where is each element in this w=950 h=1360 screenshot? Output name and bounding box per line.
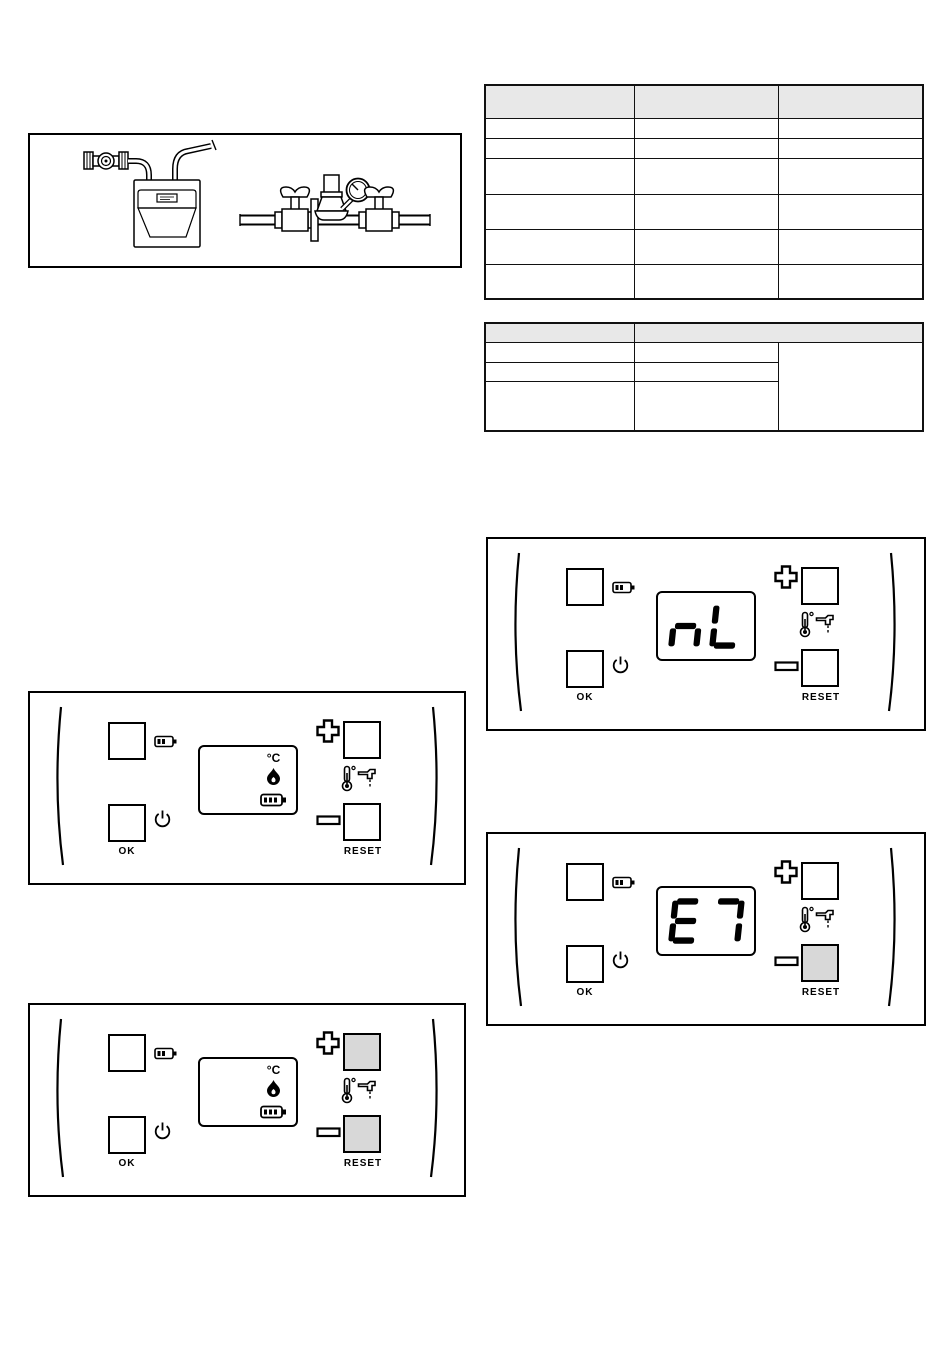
segment-display <box>658 593 754 659</box>
battery-icon <box>154 1047 178 1060</box>
panel-curve-right <box>431 707 437 865</box>
plus-button[interactable] <box>801 567 839 605</box>
power-icon <box>611 950 630 969</box>
minus-button[interactable] <box>343 803 381 841</box>
table-cell <box>634 264 778 299</box>
table-header-cell <box>634 323 923 342</box>
table-row <box>485 264 923 299</box>
panel-curve-right <box>889 848 895 1006</box>
battery-level-icon <box>260 1105 287 1124</box>
power-icon <box>153 809 172 828</box>
panel-curve-left <box>515 848 521 1006</box>
celsius-label: °C <box>267 752 280 765</box>
power-button[interactable] <box>566 945 604 983</box>
reset-label: RESET <box>793 987 849 998</box>
minus-icon <box>316 815 341 826</box>
power-icon <box>611 655 630 674</box>
minus-button[interactable] <box>343 1115 381 1153</box>
plus-button[interactable] <box>343 721 381 759</box>
table-cell <box>634 158 778 194</box>
table-cell <box>778 264 923 299</box>
power-button[interactable] <box>566 650 604 688</box>
plus-icon <box>774 565 798 589</box>
plus-button[interactable] <box>801 862 839 900</box>
battery-icon <box>154 735 178 748</box>
panel-curve-left <box>57 707 63 865</box>
table-merged-cell <box>778 342 923 431</box>
table-cell <box>485 342 634 362</box>
table-cell <box>778 194 923 229</box>
filling-loop-illustration <box>240 175 430 241</box>
table-cell <box>485 381 634 431</box>
table-cell <box>634 118 778 138</box>
table-cell <box>634 229 778 264</box>
table-header-cell <box>634 85 778 118</box>
plus-icon <box>774 860 798 884</box>
table-cell <box>634 362 778 381</box>
table-cell <box>485 118 634 138</box>
ok-label: OK <box>102 846 152 857</box>
battery-icon <box>612 581 636 594</box>
reset-label: RESET <box>335 846 391 857</box>
plus-icon <box>316 719 340 743</box>
table-cell <box>634 342 778 362</box>
panel-curve-left <box>57 1019 63 1177</box>
celsius-label: °C <box>267 1064 280 1077</box>
table-cell <box>634 194 778 229</box>
control-panel-icons: OK °C RESET <box>28 691 466 885</box>
battery-icon <box>612 876 636 889</box>
table-cell <box>485 264 634 299</box>
installation-figure <box>28 133 462 268</box>
panel-curve-left <box>515 553 521 711</box>
table-header-cell <box>778 85 923 118</box>
panel-curve-right <box>431 1019 437 1177</box>
spec-table <box>484 84 924 300</box>
table-row <box>485 194 923 229</box>
gas-valve-illustration <box>84 152 128 169</box>
plus-button[interactable] <box>343 1033 381 1071</box>
flame-icon <box>267 1080 280 1102</box>
pipe-illustration <box>128 140 216 180</box>
control-panel-adjust: OK °C RESET <box>28 1003 466 1197</box>
table-header-row <box>485 85 923 118</box>
table-cell <box>485 229 634 264</box>
manual-page: OK °C RESET <box>0 0 950 1360</box>
control-panel-code-e7: OK RESET <box>486 832 926 1026</box>
table-row <box>485 118 923 138</box>
minus-icon <box>316 1127 341 1138</box>
lcd-display: °C <box>198 745 298 815</box>
thermometer-tap-icon <box>798 611 836 639</box>
table-cell <box>634 138 778 158</box>
control-panel-code-nl: OK RESET <box>486 537 926 731</box>
table-row <box>485 229 923 264</box>
table-cell <box>485 194 634 229</box>
table-cell <box>778 138 923 158</box>
thermometer-tap-icon <box>340 765 378 793</box>
minus-button[interactable] <box>801 649 839 687</box>
table-cell <box>778 118 923 138</box>
minus-button[interactable] <box>801 944 839 982</box>
installation-figure-art <box>30 135 460 262</box>
lcd-display <box>656 591 756 661</box>
thermometer-tap-icon <box>798 906 836 934</box>
plus-icon <box>316 1031 340 1055</box>
panel-curve-right <box>889 553 895 711</box>
minus-icon <box>774 956 799 967</box>
table-cell <box>778 229 923 264</box>
lcd-display <box>656 886 756 956</box>
table-cell <box>485 138 634 158</box>
table-header-cell <box>485 85 634 118</box>
reset-label: RESET <box>793 692 849 703</box>
table-row <box>485 138 923 158</box>
table-cell <box>778 158 923 194</box>
mode-button[interactable] <box>566 568 604 606</box>
table-header-cell <box>485 323 634 342</box>
mode-button[interactable] <box>566 863 604 901</box>
small-table <box>484 322 924 432</box>
segment-display <box>658 888 754 954</box>
mode-button[interactable] <box>108 722 146 760</box>
table-row <box>485 342 923 362</box>
minus-icon <box>774 661 799 672</box>
lcd-display: °C <box>198 1057 298 1127</box>
power-icon <box>153 1121 172 1140</box>
ok-label: OK <box>102 1158 152 1169</box>
table-header-row <box>485 323 923 342</box>
battery-level-icon <box>260 793 287 812</box>
gas-meter-illustration <box>134 180 200 247</box>
flame-icon <box>267 768 280 790</box>
table-row <box>485 158 923 194</box>
table-cell <box>634 381 778 431</box>
reset-label: RESET <box>335 1158 391 1169</box>
table-cell <box>485 158 634 194</box>
table-cell <box>485 362 634 381</box>
power-button[interactable] <box>108 1116 146 1154</box>
ok-label: OK <box>560 692 610 703</box>
power-button[interactable] <box>108 804 146 842</box>
mode-button[interactable] <box>108 1034 146 1072</box>
ok-label: OK <box>560 987 610 998</box>
thermometer-tap-icon <box>340 1077 378 1105</box>
